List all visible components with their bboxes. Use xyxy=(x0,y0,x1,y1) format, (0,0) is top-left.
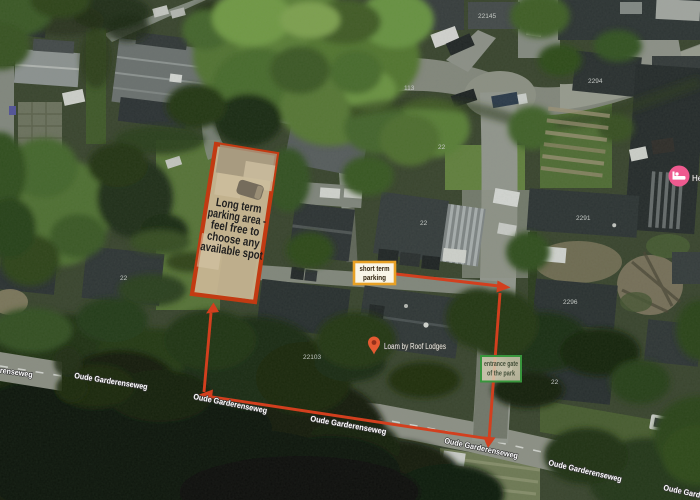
svg-text:113: 113 xyxy=(404,85,415,92)
svg-text:22: 22 xyxy=(438,144,446,151)
svg-text:entrance gate: entrance gate xyxy=(484,361,518,368)
svg-text:22145: 22145 xyxy=(478,13,496,20)
svg-text:short term: short term xyxy=(360,264,390,273)
svg-text:Loam by Roof Lodges: Loam by Roof Lodges xyxy=(384,342,446,351)
svg-text:2296: 2296 xyxy=(563,299,578,306)
svg-text:22103: 22103 xyxy=(303,354,321,361)
svg-text:Het: Het xyxy=(692,174,700,183)
svg-text:2294: 2294 xyxy=(588,78,603,85)
svg-text:2291: 2291 xyxy=(576,215,591,222)
svg-text:22: 22 xyxy=(420,220,428,227)
svg-text:22: 22 xyxy=(551,379,559,386)
svg-text:of the park: of the park xyxy=(487,371,515,378)
svg-text:22: 22 xyxy=(120,275,128,282)
svg-text:parking: parking xyxy=(363,273,386,282)
